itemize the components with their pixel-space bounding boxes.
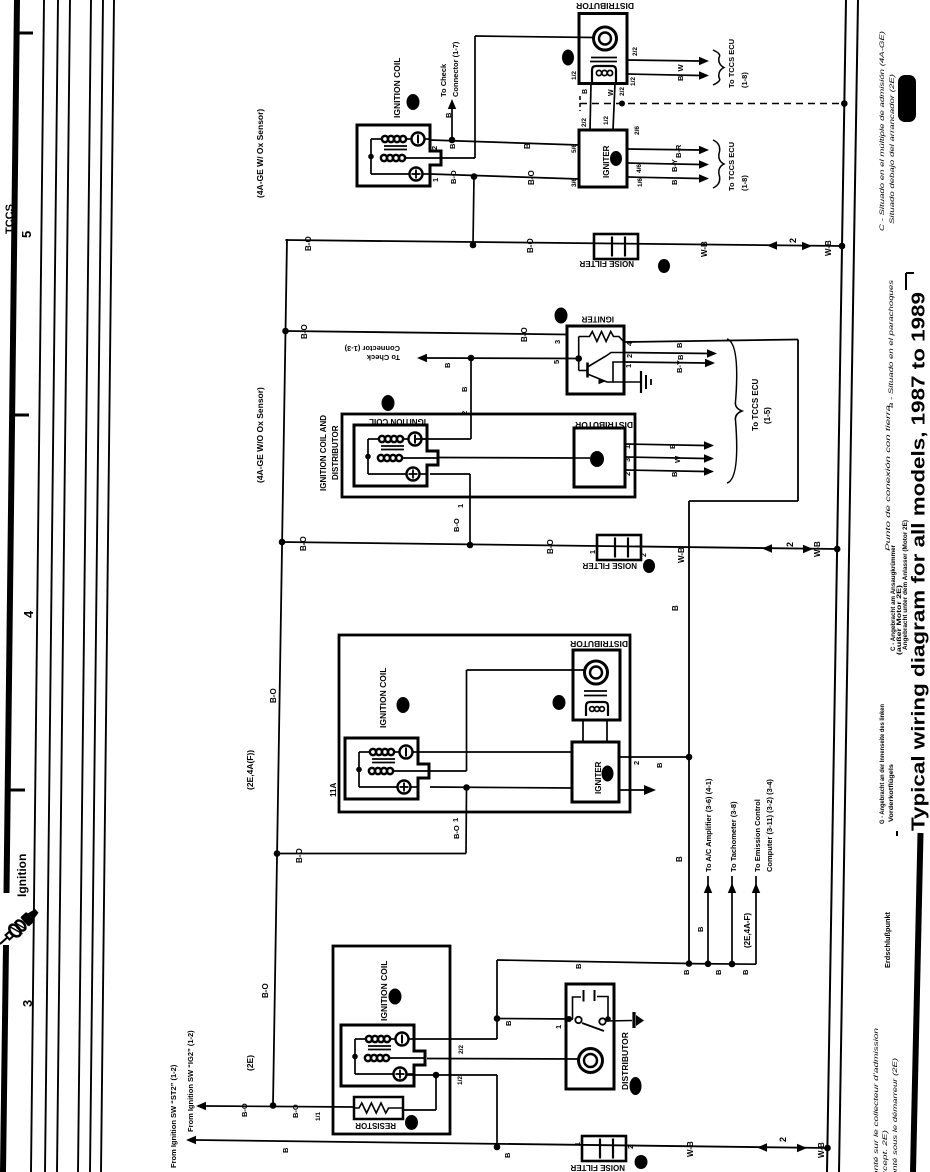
svg-text:3: 3 [553, 340, 562, 344]
svg-text:9B: 9B [564, 52, 573, 62]
svg-text:B-O: B-O [291, 1104, 300, 1118]
svg-text:2/6: 2/6 [634, 126, 641, 135]
svg-text:1/2: 1/2 [571, 71, 578, 80]
svg-text:11A: 11A [329, 783, 338, 797]
svg-text:To TCCS ECU: To TCCS ECU [751, 378, 760, 431]
svg-text:(4A-GE W/ Ox Sensor): (4A-GE W/ Ox Sensor) [255, 109, 265, 198]
svg-text:From Ignition SW “ST2” (1-2): From Ignition SW “ST2” (1-2) [169, 1064, 178, 1168]
svg-text:IGNITION COIL: IGNITION COIL [379, 961, 389, 1021]
svg-text:2/2: 2/2 [632, 47, 639, 56]
svg-text:To Check: To Check [366, 353, 400, 362]
svg-text:B-O: B-O [261, 983, 270, 998]
svg-text:B: B [443, 362, 452, 368]
svg-text:1/2: 1/2 [457, 1076, 464, 1085]
svg-text:2/2: 2/2 [581, 118, 588, 127]
svg-text:Punto de conexión con tierra: Punto de conexión con tierra [885, 404, 892, 551]
svg-text:B-O: B-O [546, 539, 555, 554]
svg-text:1/1: 1/1 [315, 1112, 322, 1121]
svg-text:1: 1 [575, 1142, 582, 1146]
svg-text:W: W [676, 64, 685, 72]
svg-text:B-R: B-R [674, 144, 683, 158]
svg-text:B-O: B-O [240, 1103, 249, 1117]
svg-text:1: 1 [590, 550, 597, 554]
svg-text:IGNITER: IGNITER [602, 145, 611, 178]
svg-text:To A/C Amplifier (3-6) (4-1): To A/C Amplifier (3-6) (4-1) [704, 778, 713, 872]
svg-text:9B: 9B [557, 310, 566, 320]
svg-text:To Tachometer (3-8): To Tachometer (3-8) [729, 801, 738, 872]
svg-text:DISTRIBUTOR: DISTRIBUTOR [331, 425, 340, 480]
svg-text:Erdschlußpunkt: Erdschlußpunkt [885, 911, 892, 968]
svg-text:1/2: 1/2 [630, 77, 637, 86]
svg-text:16: 16 [660, 260, 669, 269]
svg-text:IGNITER: IGNITER [581, 315, 614, 324]
svg-text:9B: 9B [408, 1116, 417, 1126]
svg-text:B-O: B-O [520, 327, 529, 342]
svg-text:B-O: B-O [527, 170, 536, 185]
svg-text:9B: 9B [555, 696, 564, 706]
svg-text:IGNITER: IGNITER [594, 761, 603, 794]
svg-text:W: W [673, 455, 682, 463]
svg-text:1: 1 [451, 818, 460, 822]
svg-text:onté sous le démarreur (2E): onté sous le démarreur (2E) [892, 1058, 899, 1172]
svg-text:3: 3 [20, 1000, 35, 1007]
svg-text:B: B [670, 471, 679, 477]
svg-text:B-O: B-O [526, 238, 535, 253]
svg-text:W-B: W-B [686, 1141, 695, 1157]
svg-text:B: B [682, 969, 691, 975]
svg-text:5: 5 [19, 231, 34, 238]
svg-text:9B: 9B [593, 453, 602, 463]
svg-text:Vorderkotflügels: Vorderkotflügels [889, 763, 895, 822]
svg-text:RESISTOR: RESISTOR [355, 1121, 396, 1130]
svg-text:xcept. 2E): xcept. 2E) [882, 1130, 889, 1172]
svg-text:2: 2 [628, 1145, 635, 1149]
svg-text:DISTRIBUTOR: DISTRIBUTOR [570, 639, 628, 649]
svg-text:(1-8): (1-8) [740, 175, 749, 191]
svg-text:B-O: B-O [295, 848, 304, 863]
svg-text:W: W [608, 89, 615, 96]
svg-text:IGNITION COIL: IGNITION COIL [392, 58, 402, 118]
svg-text:C - Situado en el múltiple de: C - Situado en el múltiple de admisión (… [879, 31, 886, 231]
svg-text:9B: 9B [399, 699, 408, 709]
svg-text:2: 2 [788, 238, 798, 243]
svg-text:B: B [655, 762, 664, 768]
svg-text:W-B: W-B [817, 1142, 826, 1158]
svg-text:B: B [504, 1020, 513, 1026]
svg-text:B: B [696, 926, 705, 932]
svg-text:(4A-GE W/O Ox Sensor): (4A-GE W/O Ox Sensor) [255, 387, 265, 483]
svg-text:B: B [574, 963, 583, 969]
svg-text:B: B [582, 89, 589, 94]
svg-text:B: B [668, 443, 677, 449]
svg-text:B: B [675, 856, 684, 862]
svg-text:1: 1 [623, 445, 632, 449]
svg-text:B: B [523, 143, 532, 149]
svg-text:1/6: 1/6 [637, 178, 644, 187]
svg-text:B: B [714, 969, 723, 975]
svg-text:To Check: To Check [439, 63, 448, 97]
svg-text:B: B [675, 342, 684, 348]
svg-text:3/6: 3/6 [571, 178, 578, 187]
svg-text:B-O: B-O [452, 825, 461, 839]
svg-text:B-O: B-O [452, 518, 461, 532]
svg-text:(2E,4A-F): (2E,4A-F) [743, 913, 752, 948]
svg-text:2: 2 [641, 553, 648, 557]
svg-text:NOISE FILTER: NOISE FILTER [570, 1163, 625, 1172]
svg-text:2: 2 [778, 1137, 788, 1142]
svg-text:B: B [676, 354, 685, 360]
svg-text:2: 2 [785, 542, 795, 547]
svg-text:B: B [281, 1147, 290, 1153]
svg-text:1: 1 [624, 364, 633, 368]
svg-text:B-Y: B-Y [675, 360, 684, 373]
svg-text:(1-5): (1-5) [763, 407, 772, 424]
svg-text:IJ4: IJ4 [409, 95, 418, 107]
svg-text:B: B [670, 179, 679, 185]
svg-text:B-O: B-O [300, 324, 309, 339]
svg-text:To Emission Control: To Emission Control [753, 799, 762, 872]
svg-text:B: B [444, 112, 453, 118]
svg-text:DISTRIBUTOR: DISTRIBUTOR [620, 1032, 630, 1090]
svg-text:W-B: W-B [813, 541, 822, 557]
svg-text:Connector (1-3): Connector (1-3) [344, 344, 400, 353]
svg-text:5/6: 5/6 [571, 144, 578, 153]
svg-text:W-B: W-B [700, 241, 709, 257]
svg-text:9B: 9B [384, 397, 393, 407]
svg-text:Ignition: Ignition [15, 854, 29, 897]
svg-text:(2E): (2E) [245, 1055, 255, 1071]
svg-text:2/2: 2/2 [458, 1045, 465, 1054]
svg-text:a - Situado en el parachoques: a - Situado en el parachoques [888, 279, 895, 408]
svg-text:2/2: 2/2 [619, 87, 626, 96]
svg-text:G - Angebracht an der Innensei: G - Angebracht an der Innenseite des lin… [880, 704, 886, 824]
svg-text:(1-8): (1-8) [740, 72, 749, 88]
svg-text:2: 2 [632, 761, 641, 765]
svg-text:B: B [741, 969, 750, 975]
svg-text:1: 1 [456, 504, 465, 508]
svg-text:B: B [671, 605, 680, 611]
svg-text:9B: 9B [604, 768, 613, 778]
svg-text:Typical wiring diagram for all: Typical wiring diagram for all models, 1… [909, 292, 929, 831]
svg-text:TCCS: TCCS [4, 204, 16, 234]
svg-text:2: 2 [623, 472, 632, 476]
svg-text:To TCCS ECU: To TCCS ECU [727, 142, 736, 191]
svg-text:To TCCS ECU: To TCCS ECU [727, 39, 736, 88]
svg-text:4/6: 4/6 [636, 164, 643, 173]
svg-text:Connector (1-7): Connector (1-7) [451, 41, 460, 97]
svg-text:B: B [503, 1152, 512, 1158]
svg-text:9B: 9B [391, 991, 400, 1001]
svg-text:(2E,4A(F)): (2E,4A(F)) [245, 750, 255, 790]
svg-text:DISTRIBUTOR: DISTRIBUTOR [576, 1, 634, 11]
svg-text:1/2: 1/2 [603, 116, 610, 125]
svg-text:W-B: W-B [677, 547, 686, 563]
svg-text:1: 1 [554, 1025, 563, 1029]
svg-text:4: 4 [21, 610, 36, 618]
svg-text:NOISE FILTER: NOISE FILTER [582, 561, 637, 570]
svg-text:1: 1 [431, 178, 440, 182]
svg-text:Computer (3-11) (3-2) (3-4): Computer (3-11) (3-2) (3-4) [765, 779, 774, 872]
svg-text:B-O: B-O [299, 536, 308, 551]
svg-text:B: B [676, 75, 685, 81]
svg-text:B-O: B-O [449, 170, 458, 184]
svg-text:3: 3 [623, 458, 632, 462]
svg-text:16: 16 [637, 1156, 646, 1165]
svg-text:B: B [460, 386, 469, 392]
svg-text:From Ignition SW “IG2” (1-2): From Ignition SW “IG2” (1-2) [186, 1030, 195, 1132]
svg-text:IGNITION COIL: IGNITION COIL [378, 668, 388, 728]
svg-text:B-Y: B-Y [670, 159, 679, 172]
svg-text:B: B [448, 143, 457, 149]
svg-text:9B: 9B [632, 1081, 641, 1091]
svg-text:B-O: B-O [269, 688, 278, 703]
svg-text:B-O: B-O [304, 236, 313, 251]
svg-text:onté sur le collecteur d’admis: onté sur le collecteur d’admission [873, 1027, 880, 1172]
svg-text:IGNITION COIL AND: IGNITION COIL AND [319, 415, 328, 491]
svg-text:W-B: W-B [824, 240, 833, 256]
svg-text:5: 5 [552, 360, 561, 364]
svg-text:NOISE FILTER: NOISE FILTER [579, 259, 634, 268]
svg-text:2: 2 [430, 146, 439, 150]
svg-text:Situado debajo del arrancador: Situado debajo del arrancador (2E) [889, 74, 896, 224]
svg-text:9B: 9B [612, 152, 621, 162]
svg-text:16: 16 [645, 560, 654, 569]
svg-text:2: 2 [625, 354, 634, 358]
